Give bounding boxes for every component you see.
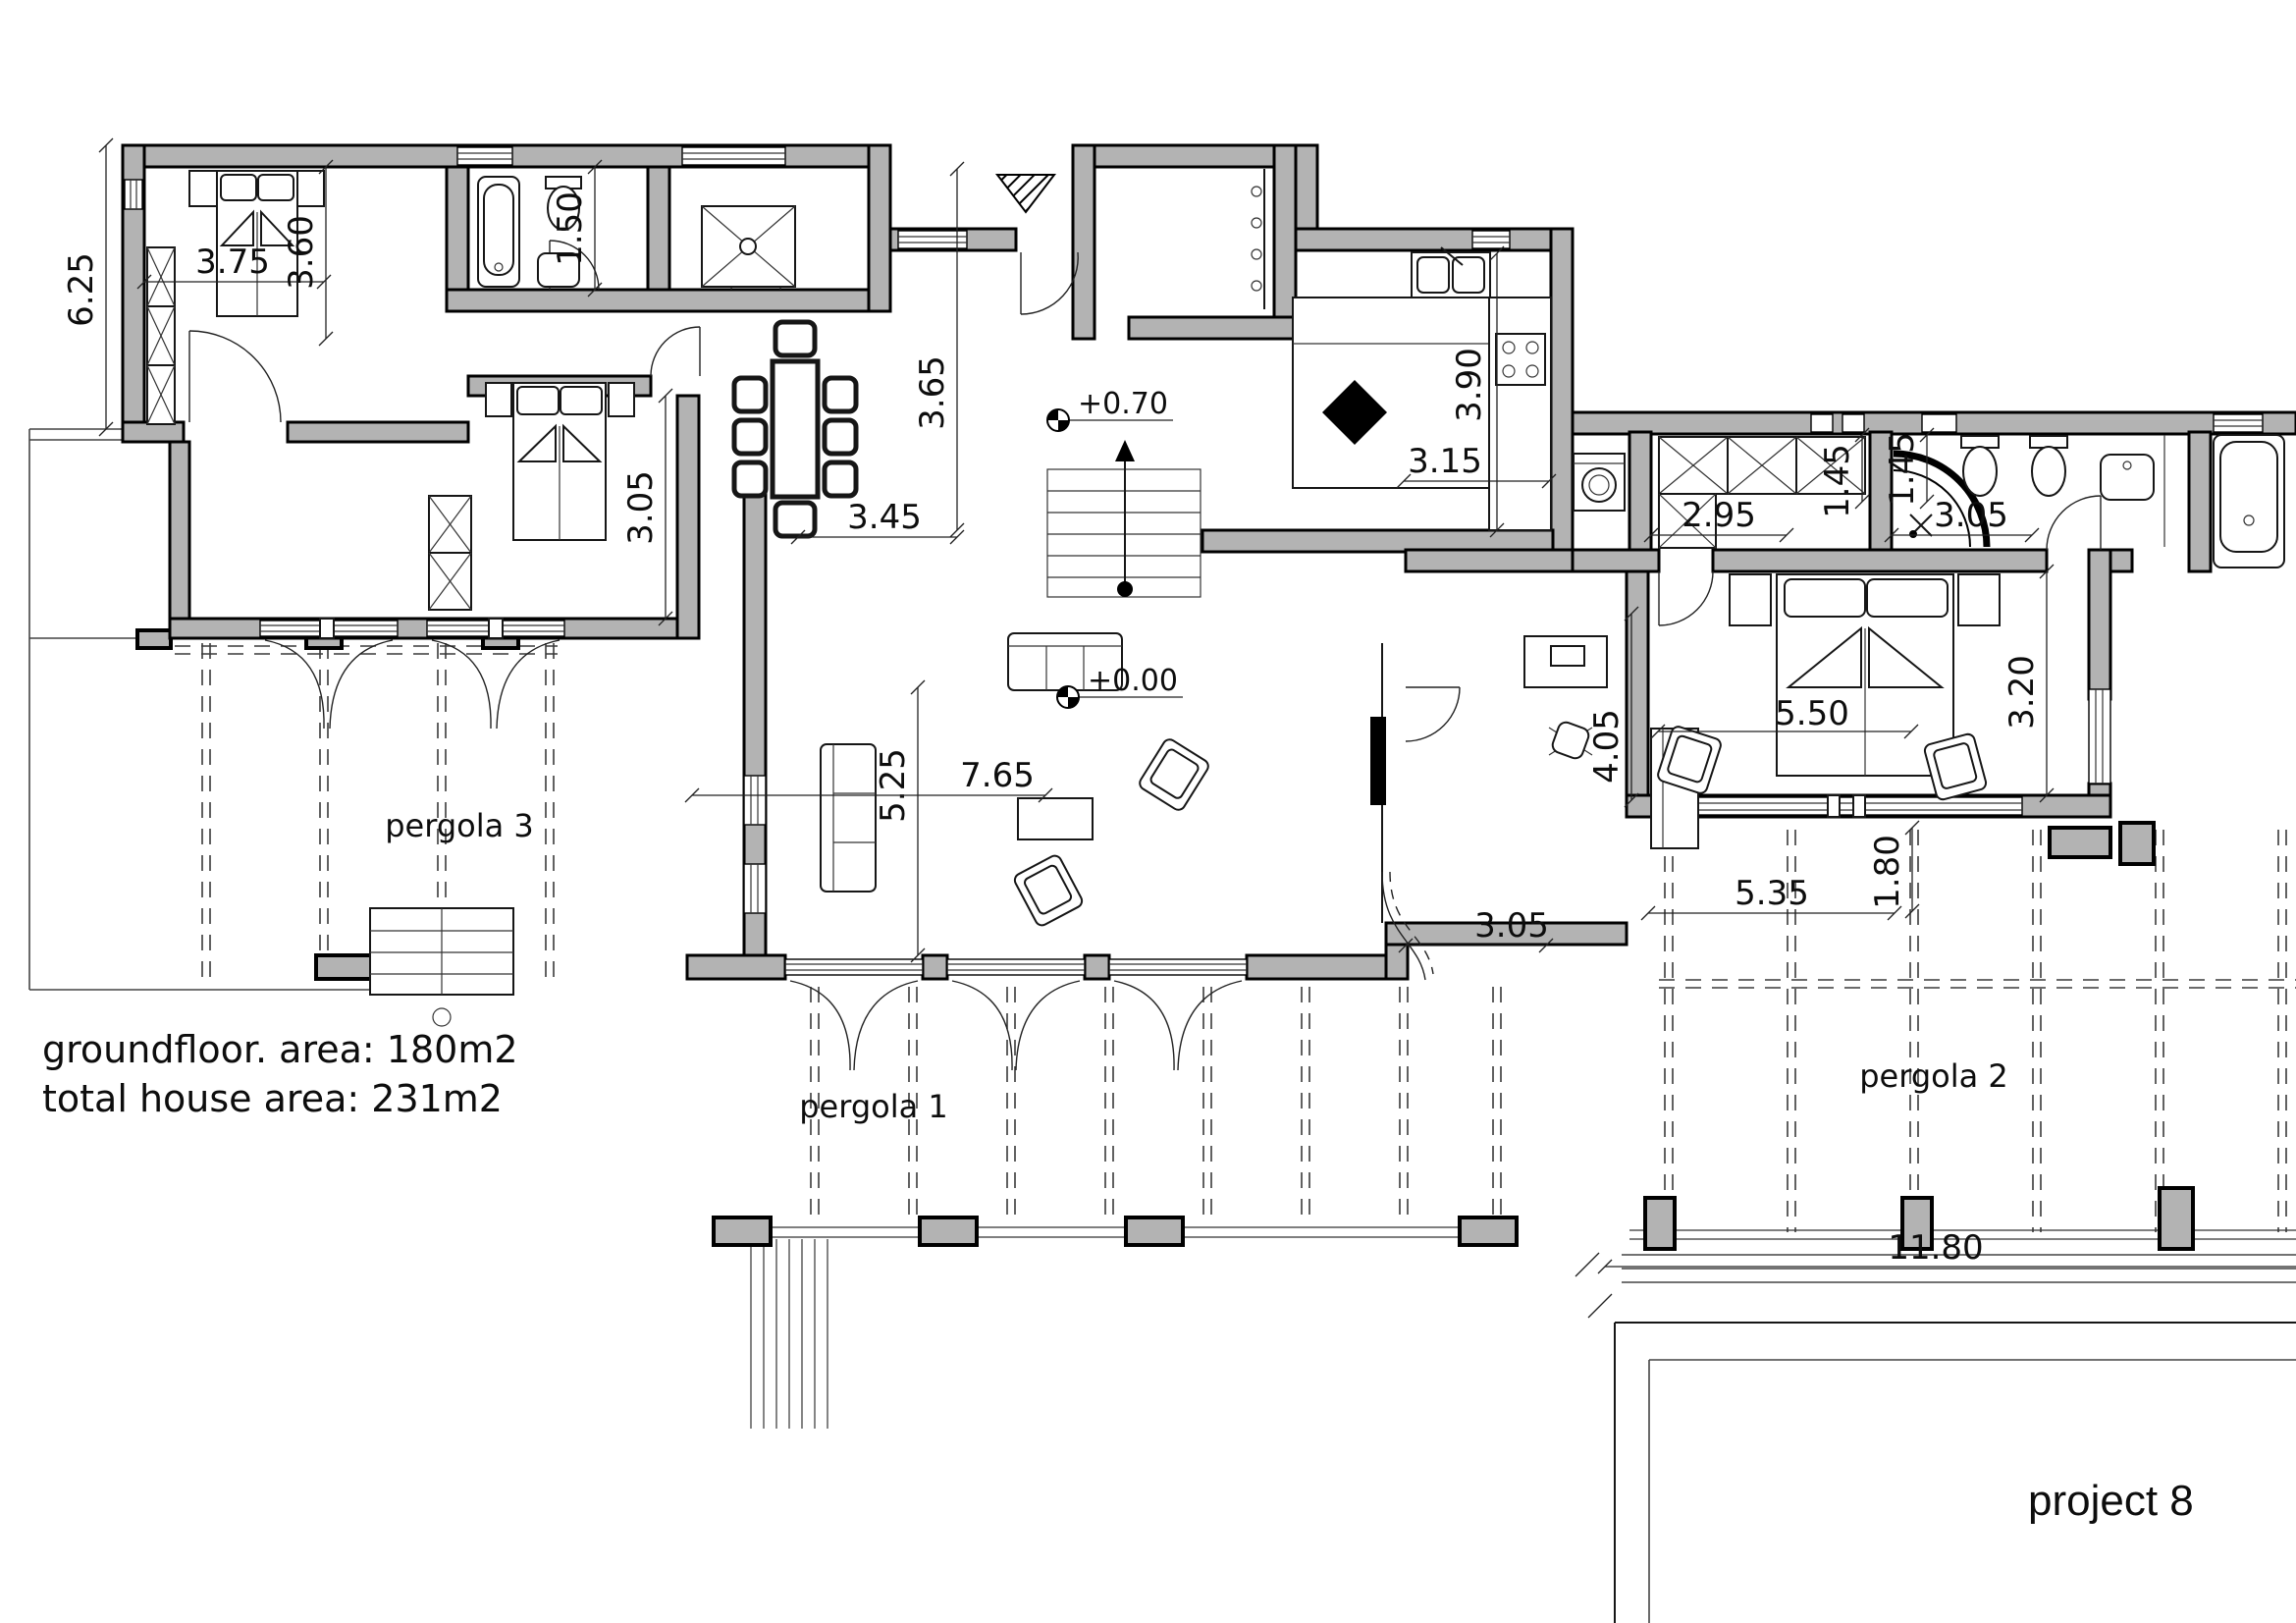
level-living-value: +0.00 xyxy=(1088,664,1178,698)
wardrobe xyxy=(147,247,175,424)
pergola-2-label: pergola 2 xyxy=(1859,1057,2008,1095)
dim-facade-left: 6.25 xyxy=(62,138,113,436)
svg-text:3.65: 3.65 xyxy=(913,355,952,430)
svg-text:1.80: 1.80 xyxy=(1868,835,1907,909)
level-mark-entry: +0.70 xyxy=(1047,387,1173,431)
dim-mbath-height: 1.45 xyxy=(1883,428,1934,509)
chair xyxy=(775,322,815,355)
dining-table xyxy=(773,361,818,497)
svg-text:5.50: 5.50 xyxy=(1775,694,1849,733)
coffee-table xyxy=(1018,798,1093,839)
pergola-1-label: pergola 1 xyxy=(799,1088,948,1125)
svg-text:2.95: 2.95 xyxy=(1682,496,1756,535)
svg-text:3.05: 3.05 xyxy=(621,470,661,545)
bidet xyxy=(2030,436,2067,496)
washing-machine xyxy=(1574,454,1625,511)
sofa xyxy=(821,744,876,892)
wall-wing-right xyxy=(869,145,890,311)
dim-bed2-height: 3.05 xyxy=(621,389,672,625)
svg-text:4.05: 4.05 xyxy=(1587,709,1627,784)
nightstand xyxy=(296,171,324,206)
door-bedroom1 xyxy=(189,331,281,422)
chair xyxy=(825,462,856,496)
svg-text:3.05: 3.05 xyxy=(1474,906,1549,946)
coat-rack xyxy=(1252,169,1264,309)
pergola-3: pergola 3 xyxy=(137,630,558,1026)
floor-plan-page: pergola 3 pergola 1 pergola 2 xyxy=(0,0,2296,1623)
svg-text:3.20: 3.20 xyxy=(2002,655,2042,730)
chair xyxy=(734,378,766,411)
nightstand xyxy=(1958,574,2000,625)
floor-plan-canvas: pergola 3 pergola 1 pergola 2 xyxy=(0,0,2296,1623)
wall-kitchen-top xyxy=(1296,229,1573,250)
svg-text:1.45: 1.45 xyxy=(1818,444,1857,518)
door-study xyxy=(1406,687,1460,741)
utility-room xyxy=(1574,454,1625,511)
shower-room xyxy=(702,206,795,287)
wardrobe xyxy=(429,496,471,610)
nightstand xyxy=(189,171,217,206)
project-title: project 8 xyxy=(2028,1477,2194,1525)
chair xyxy=(734,420,766,454)
door-entry xyxy=(1021,252,1078,314)
level-entry-value: +0.70 xyxy=(1078,387,1168,421)
entry-arrow-icon xyxy=(997,175,1054,212)
bathtub xyxy=(2214,435,2284,568)
area-total: total house area: 231m2 xyxy=(42,1077,503,1120)
armchair xyxy=(1138,737,1211,813)
stairs xyxy=(1047,440,1201,597)
wall-kitchen-right xyxy=(1551,229,1573,552)
chair xyxy=(825,420,856,454)
svg-text:3.15: 3.15 xyxy=(1408,442,1482,481)
dim-living-height: 5.25 xyxy=(874,680,925,962)
chair xyxy=(775,503,815,536)
armchair xyxy=(1012,853,1084,928)
area-groundfloor: groundfloor. area: 180m2 xyxy=(42,1028,518,1071)
tv xyxy=(1370,717,1386,805)
dim-dining-height: 3.65 xyxy=(913,162,964,537)
site-lines xyxy=(29,429,2296,1623)
door-master-bedroom xyxy=(1659,571,1713,625)
annotations: groundfloor. area: 180m2 total house are… xyxy=(42,1028,2194,1525)
chair xyxy=(825,378,856,411)
door-master-bath xyxy=(2047,496,2101,550)
dim-terrace-width: 5.35 xyxy=(1641,874,1901,920)
svg-text:6.25: 6.25 xyxy=(62,252,101,327)
garden-bench xyxy=(370,908,513,1026)
nightstand xyxy=(609,383,634,416)
chair xyxy=(734,462,766,496)
pergola-3-label: pergola 3 xyxy=(385,807,534,844)
bedroom-2 xyxy=(429,383,634,610)
svg-text:5.25: 5.25 xyxy=(874,748,913,823)
kitchen-counter xyxy=(1489,298,1551,530)
svg-text:3.75: 3.75 xyxy=(195,243,270,282)
stove xyxy=(1496,334,1545,385)
pergola-2: pergola 2 xyxy=(1629,830,2296,1249)
kitchen-sink xyxy=(1412,247,1490,298)
svg-text:11.80: 11.80 xyxy=(1888,1228,1983,1268)
svg-text:3.90: 3.90 xyxy=(1450,348,1489,422)
office-chair xyxy=(1549,720,1592,760)
wall-left-lower xyxy=(170,442,189,638)
bedroom-1 xyxy=(147,171,324,424)
sliding-doors-pergola1 xyxy=(785,959,1247,1070)
dim-mbed-height: 3.20 xyxy=(2002,565,2054,802)
entry xyxy=(997,169,1264,309)
nightstand xyxy=(1730,574,1771,625)
wall-wing-bottom xyxy=(170,619,682,638)
dim-terrace-height: 1.80 xyxy=(1868,821,1919,918)
svg-text:3.45: 3.45 xyxy=(847,498,922,537)
nightstand xyxy=(486,383,511,416)
svg-text:1.45: 1.45 xyxy=(1883,432,1922,507)
wall-bath-strip-bottom xyxy=(447,290,890,311)
svg-text:3.05: 3.05 xyxy=(1934,496,2008,535)
door-bedroom2 xyxy=(651,327,700,376)
exterior-steps xyxy=(751,1239,828,1429)
svg-text:7.65: 7.65 xyxy=(960,756,1035,795)
pergola-1: pergola 1 xyxy=(712,987,1517,1245)
armchair xyxy=(1923,732,1987,800)
toilet xyxy=(1961,436,1999,496)
svg-text:3.60: 3.60 xyxy=(282,215,321,290)
svg-text:1.50: 1.50 xyxy=(551,191,590,266)
svg-text:5.35: 5.35 xyxy=(1735,874,1809,913)
wall-master-right xyxy=(2089,550,2110,699)
kitchen xyxy=(1293,247,1551,530)
master-bedroom xyxy=(1656,574,2000,801)
